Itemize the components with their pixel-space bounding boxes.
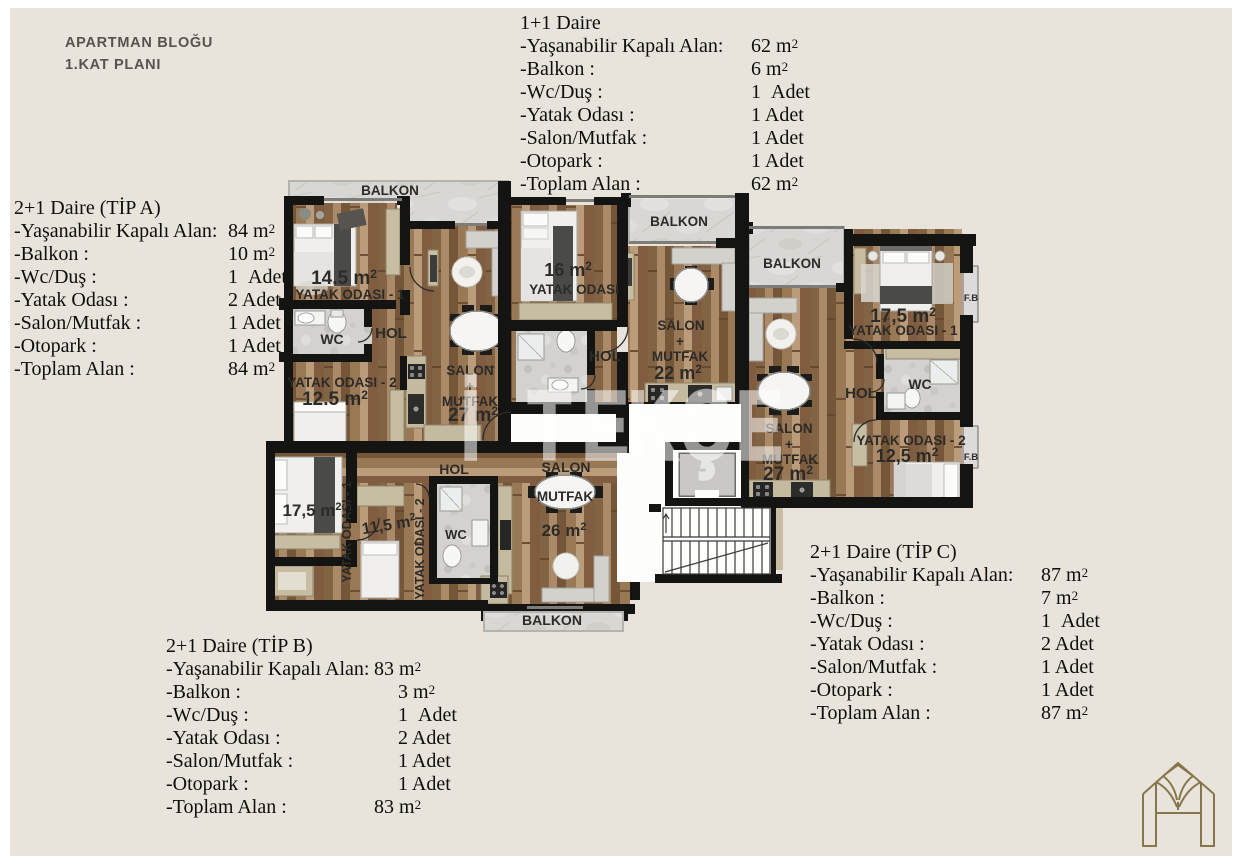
svg-text:HOL: HOL [589, 348, 621, 365]
svg-text:YATAK ODASI - 1: YATAK ODASI - 1 [340, 481, 354, 582]
svg-text:+: + [676, 334, 684, 349]
svg-text:BALKON: BALKON [522, 612, 582, 628]
svg-text:+: + [785, 437, 793, 452]
svg-text:YATAK ODASI - 2: YATAK ODASI - 2 [287, 375, 396, 390]
svg-text:WC: WC [908, 376, 931, 392]
svg-text:YATAK ODASI - 2: YATAK ODASI - 2 [413, 498, 427, 599]
svg-text:HOL: HOL [845, 385, 877, 402]
svg-text:BALKON: BALKON [763, 256, 821, 271]
svg-text:12,5 m2: 12,5 m2 [876, 446, 938, 466]
svg-text:26 m2: 26 m2 [542, 521, 587, 540]
svg-text:YATAK ODASI - 1: YATAK ODASI - 1 [295, 287, 405, 302]
svg-text:BALKON: BALKON [361, 183, 419, 198]
svg-text:MUTFAK: MUTFAK [652, 349, 708, 364]
svg-text:F.B: F.B [964, 293, 978, 304]
svg-text:WC: WC [320, 331, 343, 347]
svg-text:YATAK ODASI: YATAK ODASI [529, 282, 619, 297]
svg-text:HOL: HOL [375, 325, 407, 342]
svg-text:16 m2: 16 m2 [544, 260, 591, 280]
svg-text:MUTFAK: MUTFAK [537, 489, 593, 504]
svg-text:17,5 m2: 17,5 m2 [282, 501, 341, 520]
svg-text:14.5 m2: 14.5 m2 [311, 267, 377, 289]
svg-text:F.B: F.B [964, 452, 978, 463]
svg-text:WC: WC [445, 527, 467, 542]
svg-text:YATAK ODASI - 1: YATAK ODASI - 1 [848, 323, 958, 338]
svg-text:12.5 m2: 12.5 m2 [302, 388, 368, 410]
svg-text:SALON: SALON [657, 318, 704, 333]
svg-text:BALKON: BALKON [650, 214, 708, 229]
